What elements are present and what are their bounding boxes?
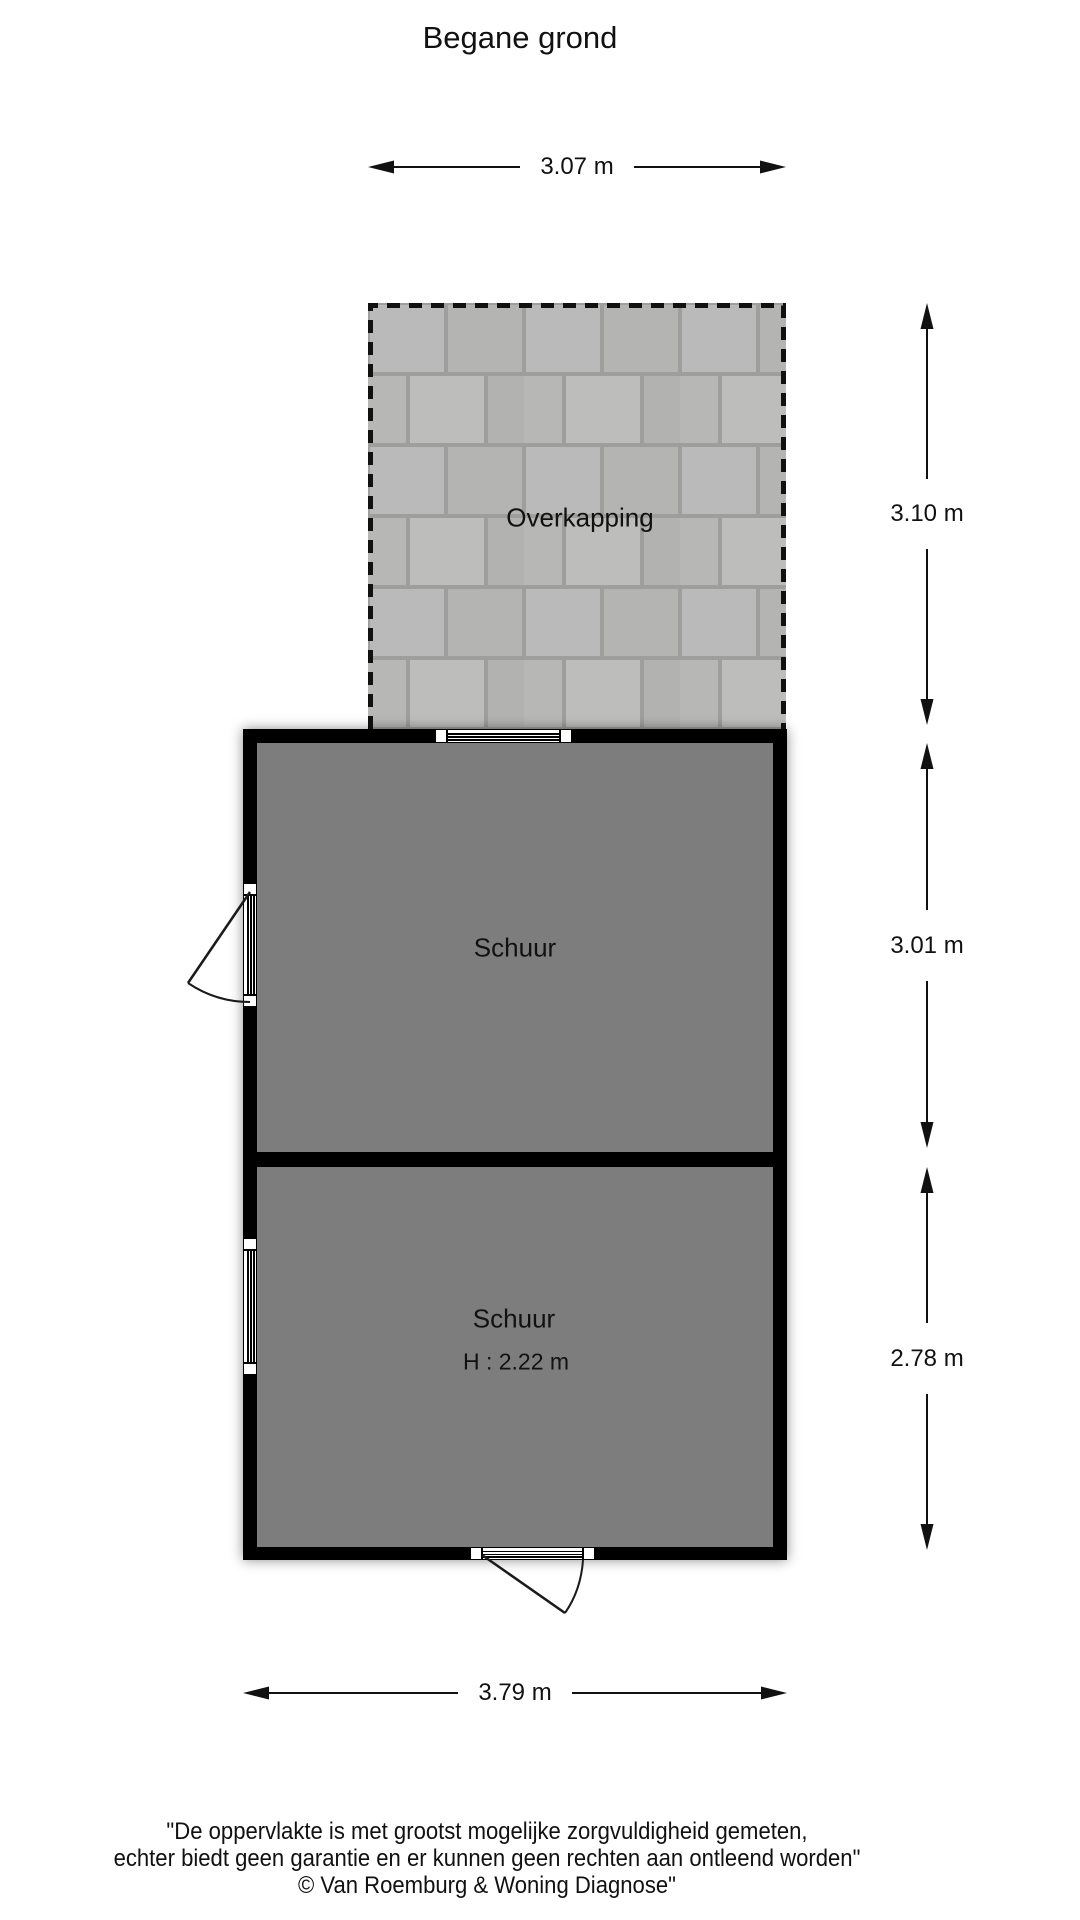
window-top-frame-right xyxy=(560,729,572,743)
schuur-building xyxy=(243,729,787,1560)
dimension-right-schuur-upper: 3.01 m xyxy=(916,743,938,1148)
arrowhead-down-icon xyxy=(921,1524,934,1550)
door-left-leaf xyxy=(188,892,250,983)
dimension-label-right-schuur-upper: 3.01 m xyxy=(890,932,963,960)
dimension-right-overkapping: 3.10 m xyxy=(916,303,938,725)
schuur-lower-label: Schuur xyxy=(473,1304,555,1335)
window-left-wall xyxy=(243,1250,257,1363)
schuur-upper-label: Schuur xyxy=(474,933,556,964)
overkapping-label: Overkapping xyxy=(506,503,653,534)
door-bottom-wall xyxy=(482,1547,583,1560)
arrowhead-up-icon xyxy=(921,1167,934,1193)
arrowhead-left-icon xyxy=(368,161,394,174)
dimension-label-top: 3.07 m xyxy=(540,153,613,181)
door-bottom-frame-left xyxy=(470,1547,482,1560)
window-top-wall xyxy=(447,729,560,743)
door-left-frame-bottom xyxy=(243,995,257,1007)
page-title: Begane grond xyxy=(423,20,618,56)
door-bottom-frame-right xyxy=(583,1547,595,1560)
footer-disclaimer: "De oppervlakte is met grootst mogelijke… xyxy=(81,1818,893,1899)
door-bottom-leaf xyxy=(482,1555,565,1613)
door-left-swing-arc xyxy=(188,983,250,1002)
schuur-lower-height-note: H : 2.22 m xyxy=(463,1349,569,1376)
dimension-label-right-overkapping: 3.10 m xyxy=(890,500,963,528)
dimension-label-right-schuur-lower: 2.78 m xyxy=(890,1345,963,1373)
arrowhead-down-icon xyxy=(921,1122,934,1148)
door-left-wall xyxy=(243,895,257,995)
footer-line-2: echter biedt geen garantie en er kunnen … xyxy=(114,1845,861,1872)
arrowhead-down-icon xyxy=(921,699,934,725)
dimension-top: 3.07 m xyxy=(368,156,786,178)
door-left-frame-top xyxy=(243,883,257,895)
window-top-frame-left xyxy=(435,729,447,743)
arrowhead-right-icon xyxy=(760,161,786,174)
door-bottom-swing-arc xyxy=(565,1560,583,1613)
arrowhead-right-icon xyxy=(761,1687,787,1700)
window-left-frame-bottom xyxy=(243,1363,257,1375)
dimension-bottom: 3.79 m xyxy=(243,1682,787,1704)
window-left-frame-top xyxy=(243,1238,257,1250)
footer-line-1: "De oppervlakte is met grootst mogelijke… xyxy=(114,1818,861,1845)
dimension-label-bottom: 3.79 m xyxy=(478,1679,551,1707)
floor-plan-page: Begane grond 3.07 m Overkapping xyxy=(0,0,1080,1920)
dimension-right-schuur-lower: 2.78 m xyxy=(916,1167,938,1550)
arrowhead-up-icon xyxy=(921,743,934,769)
arrowhead-up-icon xyxy=(921,303,934,329)
footer-line-3: © Van Roemburg & Woning Diagnose" xyxy=(114,1872,861,1899)
arrowhead-left-icon xyxy=(243,1687,269,1700)
